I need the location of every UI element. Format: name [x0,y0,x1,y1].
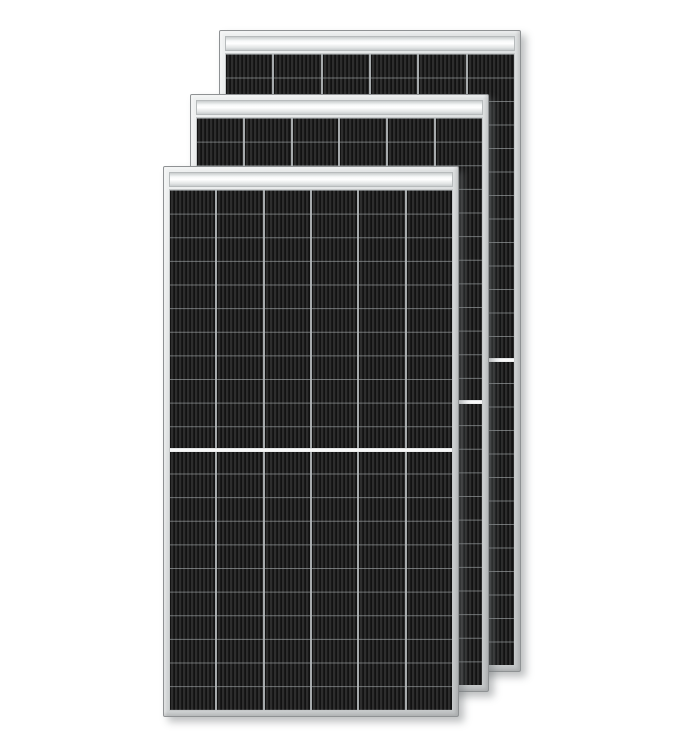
solar-panel-front [163,166,459,717]
cell-column [170,190,215,710]
panel-top-rail [225,36,515,51]
panel-top-rail [169,172,453,187]
cell-column [407,190,452,710]
cell-column [265,190,310,710]
cell-column [312,190,357,710]
solar-panel-stack [0,0,684,748]
panel-top-rail [196,100,483,115]
panel-frame-inner [169,172,453,711]
cell-column [217,190,262,710]
cell-column [359,190,404,710]
panel-cell-grid [169,189,453,711]
